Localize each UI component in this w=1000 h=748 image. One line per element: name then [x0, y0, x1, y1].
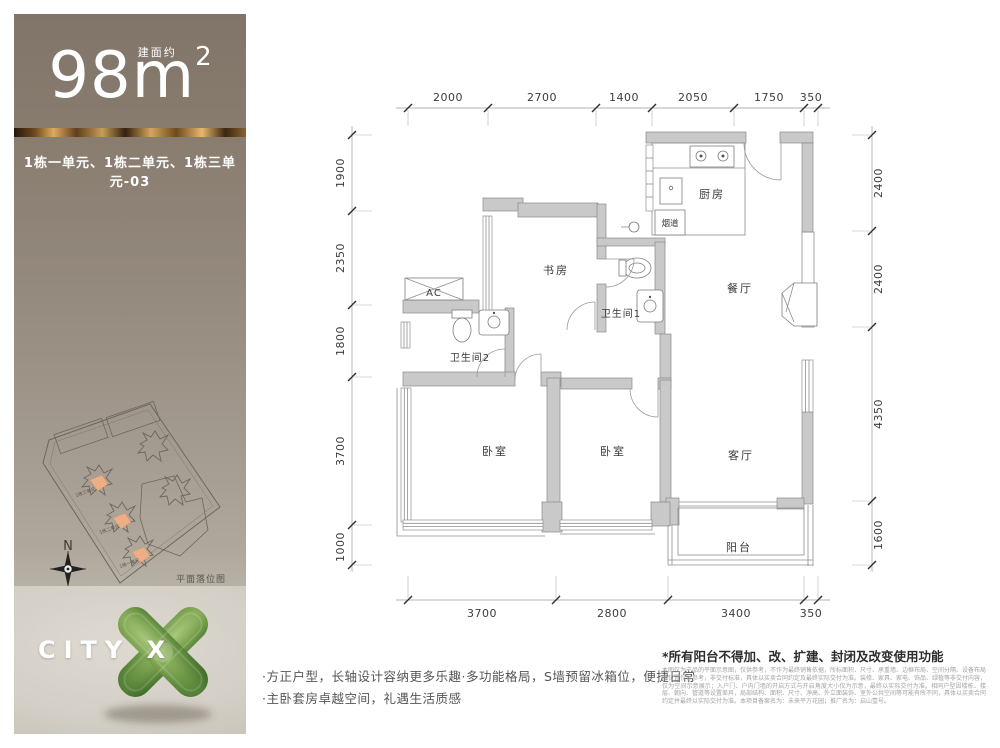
dim-right-2: 4350	[872, 399, 885, 429]
dim-left-1: 2350	[334, 243, 347, 273]
dim-top-5: 350	[800, 91, 823, 104]
siteplan-caption: 平面落位图	[176, 573, 226, 585]
doors	[477, 143, 781, 417]
dim-top-0: 2000	[433, 91, 463, 104]
area-superscript: 2	[195, 42, 212, 72]
selling-point-1: ·方正户型，长轴设计容纳更多乐趣·多功能格局，S墙预留冰箱位，便捷日常	[262, 666, 695, 688]
sidebar-panel: 98建面约m2 1栋一单元、1栋二单元、1栋三单元-03	[14, 14, 246, 734]
area-number: 98	[48, 39, 131, 113]
gold-divider	[14, 128, 246, 137]
dim-right-0: 2400	[872, 168, 885, 198]
balcony-warning: *所有阳台不得加、改、扩建、封闭及改变使用功能	[662, 646, 944, 665]
dim-top-4: 1750	[754, 91, 784, 104]
siteplan-figure: 1栋三单元 1栋二单元 1栋一单元 N 平面落位图	[24, 384, 236, 594]
room-label-study: 书房	[543, 264, 569, 277]
dim-top-1: 2700	[527, 91, 557, 104]
siteplan-boundary	[43, 404, 220, 583]
room-label-bath1: 卫生间1	[601, 307, 641, 320]
area-figure: 98建面约m2	[14, 42, 246, 108]
logo-photo: CITY X	[14, 586, 246, 734]
dim-bottom-1: 2800	[597, 607, 627, 620]
dim-right-3: 1600	[872, 520, 885, 550]
area-note: 建面约	[138, 44, 177, 60]
dim-bottom-0: 3700	[467, 607, 497, 620]
room-label-living: 客厅	[728, 448, 754, 462]
room-label-bath2: 卫生间2	[450, 351, 490, 364]
dim-top-3: 2050	[678, 91, 708, 104]
room-label-flue: 烟道	[661, 218, 679, 229]
room-labels: 厨房 烟道 书房 卫生间1 AC 卫生间2 餐厅 卧室 卧室 客厅 阳台	[426, 188, 754, 554]
dim-right-1: 2400	[872, 264, 885, 294]
dim-left-4: 1000	[334, 532, 347, 562]
compass-icon: N	[50, 539, 86, 587]
dim-bottom-3: 350	[800, 607, 823, 620]
floorplan-svg: 2000 2700 1400 2050 1750 350 1900 2350 1…	[330, 80, 930, 650]
room-label-dining: 餐厅	[727, 281, 753, 295]
selling-points: ·方正户型，长轴设计容纳更多乐趣·多功能格局，S墙预留冰箱位，便捷日常 ·主卧套…	[262, 666, 695, 710]
room-label-balcony: 阳台	[726, 540, 752, 554]
selling-point-2: ·主卧套房卓越空间，礼遇生活质感	[262, 688, 695, 710]
siteplan-label-1: 1栋三单元	[74, 485, 96, 499]
dim-bottom-2: 3400	[721, 607, 751, 620]
room-label-bedroom-right: 卧室	[600, 444, 626, 458]
siteplan-x-buildings	[82, 431, 190, 566]
dim-left-0: 1900	[334, 158, 347, 188]
room-label-bedroom-left: 卧室	[482, 444, 508, 458]
room-label-ac: AC	[426, 288, 442, 299]
dim-top-2: 1400	[609, 91, 639, 104]
room-label-kitchen: 厨房	[699, 188, 725, 201]
dim-left-3: 3700	[334, 436, 347, 466]
dim-left-2: 1800	[334, 326, 347, 356]
brand-logo-text: CITY X	[38, 636, 173, 664]
siteplan-label-2: 1栋二单元	[98, 522, 120, 536]
legal-disclaimer: 本图仅为产品的平面示意图，仅供参考，不作为最终销售依据，所标面积、尺寸、承重墙、…	[662, 667, 986, 706]
siteplan-label-3: 1栋一单元	[118, 556, 140, 570]
units-label: 1栋一单元、1栋二单元、1栋三单元-03	[14, 152, 246, 190]
